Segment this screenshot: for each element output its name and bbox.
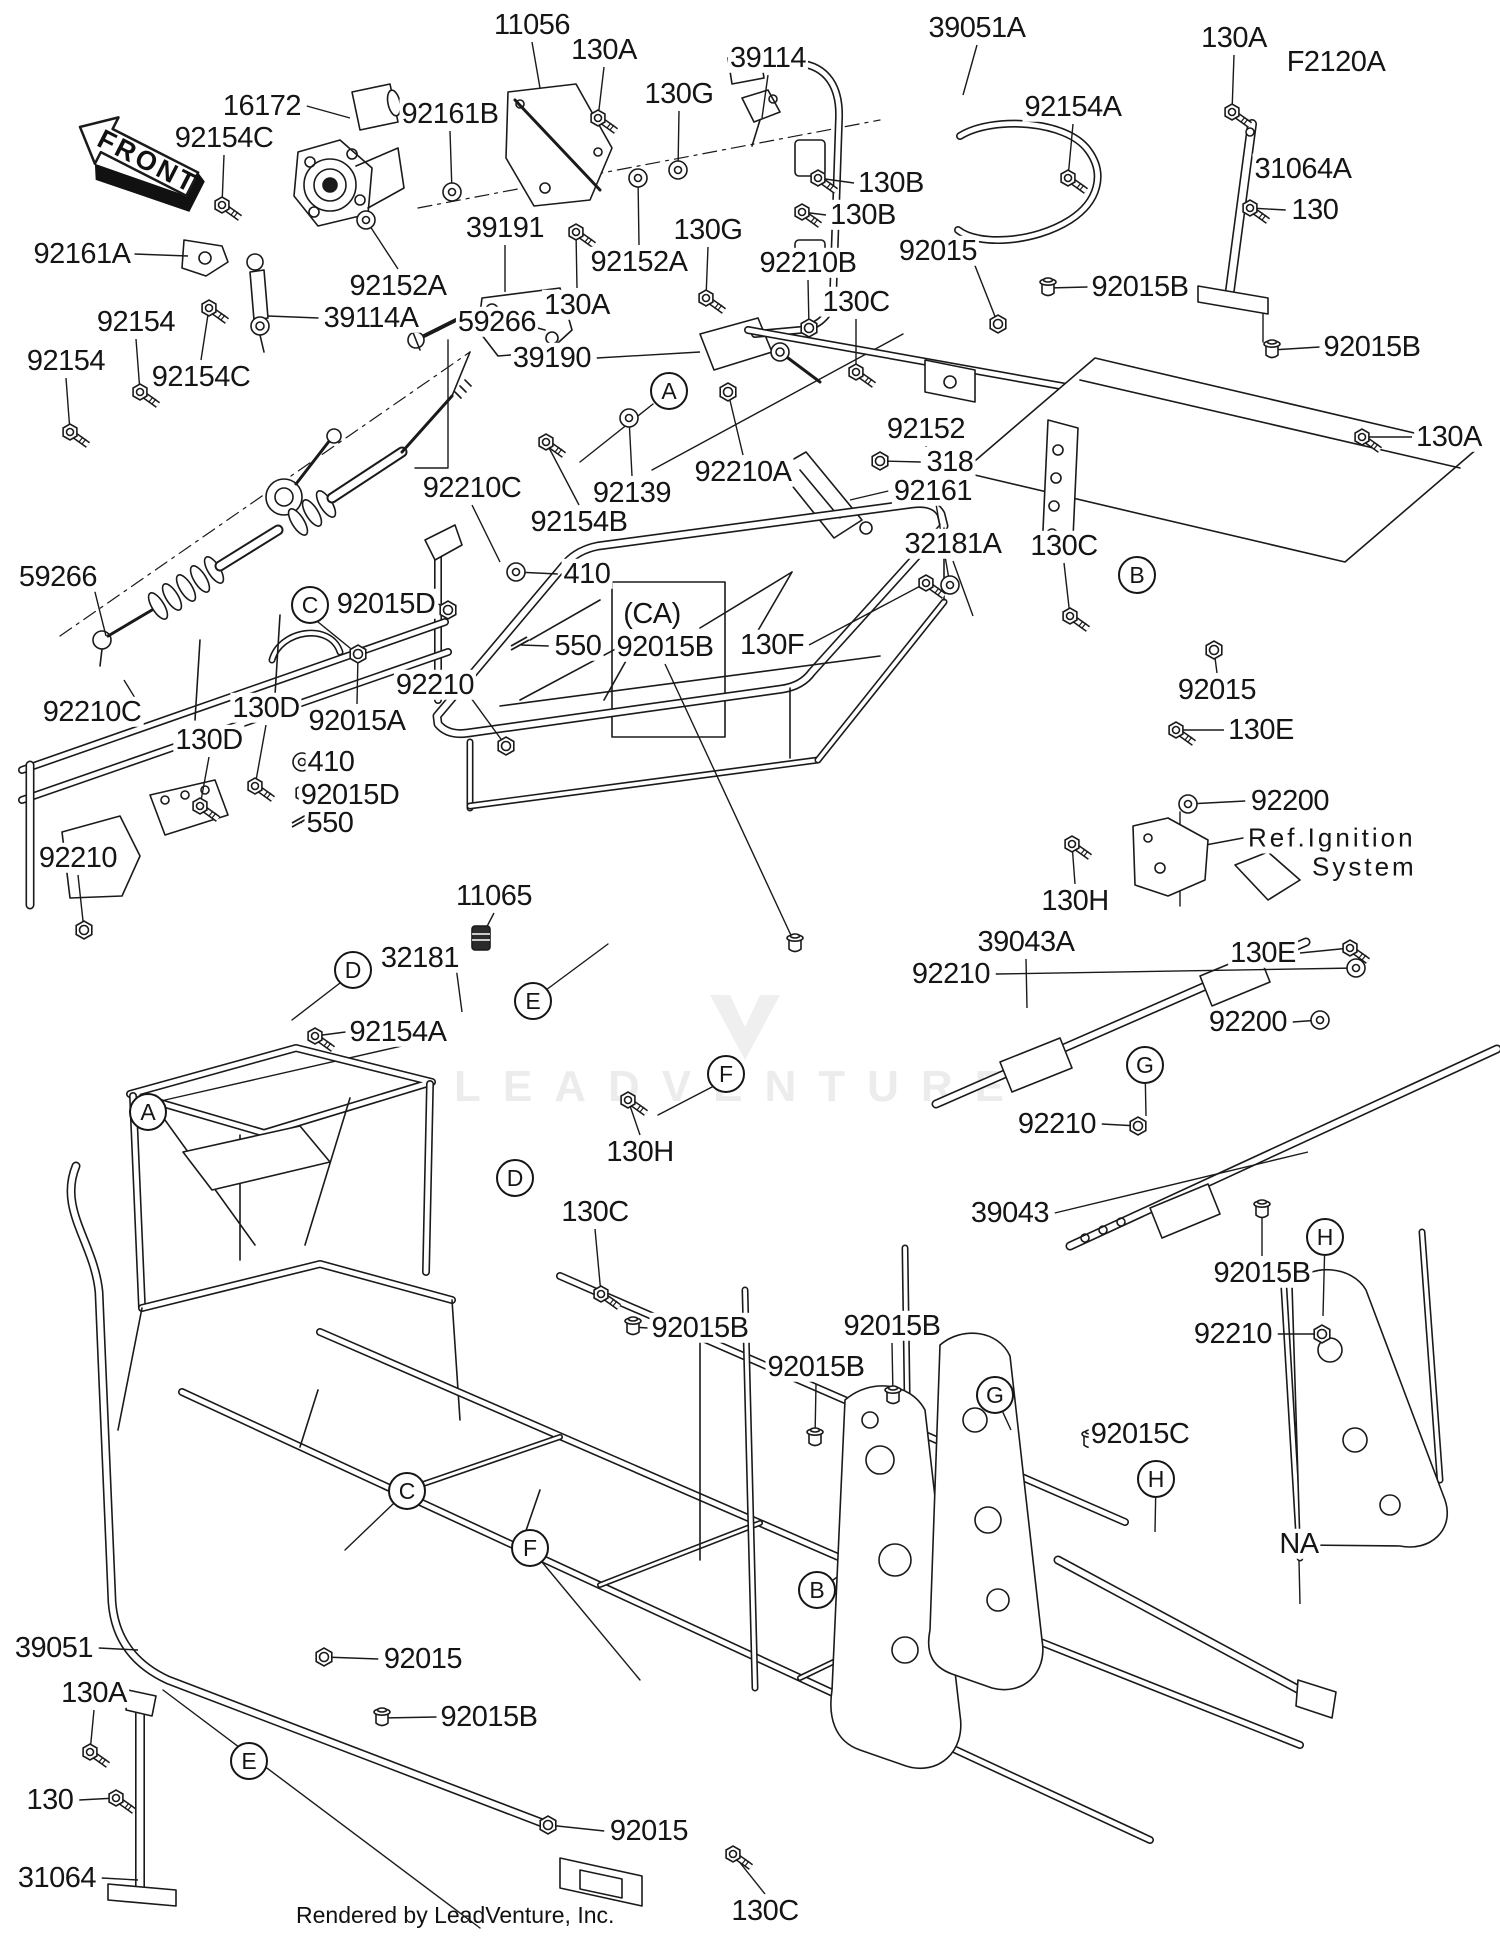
part-label: 92015D xyxy=(335,589,438,619)
part-label: 130E xyxy=(1228,938,1298,968)
part-label: 92161 xyxy=(892,476,974,506)
part-label: 39043 xyxy=(969,1198,1051,1228)
part-label: 130D xyxy=(230,693,301,723)
part-label: 130C xyxy=(559,1197,630,1227)
part-label: 130A xyxy=(1414,422,1484,452)
part-label: 39191 xyxy=(464,213,546,243)
part-label: 92210C xyxy=(421,473,524,503)
callout-circle-C: C xyxy=(388,1472,426,1510)
callout-circle-H: H xyxy=(1137,1460,1175,1498)
part-label: 410 xyxy=(562,559,613,589)
part-label: 32181A xyxy=(903,529,1004,559)
part-label: 11056 xyxy=(492,10,572,40)
callout-circle-C: C xyxy=(291,586,329,624)
part-label: 130A xyxy=(1199,23,1269,53)
part-label: 39051 xyxy=(13,1633,95,1663)
part-label: 130F xyxy=(738,630,806,660)
part-label: 39043A xyxy=(976,927,1077,957)
part-label: 92154A xyxy=(1023,92,1124,122)
part-label: 92154C xyxy=(150,362,253,392)
part-label: 130 xyxy=(25,1785,76,1815)
part-label: 550 xyxy=(305,808,356,838)
callout-circle-D: D xyxy=(496,1159,534,1197)
callout-circle-E: E xyxy=(230,1742,268,1780)
part-label: 92139 xyxy=(591,478,673,508)
part-label: (CA) xyxy=(621,599,683,629)
ref-note-line1: Ref.Ignition xyxy=(1248,823,1416,854)
callout-circle-F: F xyxy=(511,1529,549,1567)
part-label: 92210 xyxy=(910,959,992,989)
part-label: 130D xyxy=(173,725,244,755)
part-label: 92015B xyxy=(1212,1258,1313,1288)
part-label: 92210 xyxy=(1192,1319,1274,1349)
part-label: 92015 xyxy=(1176,675,1258,705)
part-label: 410 xyxy=(306,747,357,777)
part-label: 92015B xyxy=(615,632,716,662)
part-label: 130C xyxy=(1028,531,1099,561)
part-label: 92152 xyxy=(885,414,967,444)
part-label: 92210A xyxy=(693,457,794,487)
part-label: 92161B xyxy=(400,99,501,129)
part-label: 92015C xyxy=(1089,1419,1192,1449)
part-label: 130C xyxy=(820,287,891,317)
part-label: 92154 xyxy=(95,307,177,337)
part-label: 130E xyxy=(1226,715,1296,745)
part-label: 92154A xyxy=(348,1017,449,1047)
part-label: 92200 xyxy=(1207,1007,1289,1037)
part-label: 130B xyxy=(828,200,898,230)
part-label: 92154 xyxy=(25,346,107,376)
callout-circle-F: F xyxy=(707,1055,745,1093)
part-label: 92015 xyxy=(897,236,979,266)
part-label: 130A xyxy=(59,1678,129,1708)
part-label: 92154B xyxy=(529,507,630,537)
part-label: 130 xyxy=(1290,195,1341,225)
part-label: 550 xyxy=(553,631,604,661)
part-label: 16172 xyxy=(221,91,303,121)
callout-circle-H: H xyxy=(1306,1218,1344,1256)
part-label: 92210C xyxy=(41,697,144,727)
callout-circle-B: B xyxy=(798,1571,836,1609)
callout-circle-A: A xyxy=(650,372,688,410)
part-label: 92161A xyxy=(32,239,133,269)
ref-note-line2: System xyxy=(1312,852,1417,883)
footer-credit: Rendered by LeadVenture, Inc. xyxy=(296,1902,614,1929)
part-label: 39190 xyxy=(511,343,593,373)
part-label: 59266 xyxy=(456,307,538,337)
part-label: 92015B xyxy=(650,1313,751,1343)
part-label: 92015 xyxy=(608,1816,690,1846)
part-label: 130H xyxy=(604,1137,675,1167)
part-label: 92015B xyxy=(1090,272,1191,302)
part-label: 59266 xyxy=(17,562,99,592)
callout-circle-G: G xyxy=(976,1376,1014,1414)
part-label: NA xyxy=(1277,1529,1320,1559)
part-label: 92152A xyxy=(348,271,449,301)
part-label: 92015B xyxy=(1322,332,1423,362)
part-label: 39114A xyxy=(322,303,421,333)
part-label: 32181 xyxy=(379,943,461,973)
part-label: 92210 xyxy=(37,843,119,873)
part-label: 11065 xyxy=(454,881,534,911)
part-label: 318 xyxy=(925,447,976,477)
part-label: 130H xyxy=(1039,886,1110,916)
part-label: 92200 xyxy=(1249,786,1331,816)
labels-layer: Ref.Ignition System 1617292154C92161B110… xyxy=(0,0,1500,1938)
part-label: 92152A xyxy=(589,247,690,277)
part-label: 92210 xyxy=(394,670,476,700)
callout-circle-G: G xyxy=(1126,1046,1164,1084)
part-label: 92015A xyxy=(307,706,408,736)
part-label: 92015D xyxy=(299,780,402,810)
callout-circle-D: D xyxy=(334,951,372,989)
part-label: 92210B xyxy=(758,248,859,278)
part-label: 39051A xyxy=(927,13,1028,43)
part-label: 92015B xyxy=(439,1702,540,1732)
part-label: 130B xyxy=(856,168,926,198)
part-label: 130G xyxy=(643,79,716,109)
part-label: 31064A xyxy=(1253,154,1354,184)
part-label: 92015B xyxy=(842,1311,943,1341)
callout-circle-B: B xyxy=(1118,556,1156,594)
part-label: 92015 xyxy=(382,1644,464,1674)
callout-circle-A: A xyxy=(129,1093,167,1131)
part-label: 130A xyxy=(542,290,612,320)
part-label: 92015B xyxy=(766,1352,867,1382)
part-label: 130A xyxy=(569,35,639,65)
parts-diagram-page: LEADVENTURE xyxy=(0,0,1500,1938)
part-label: 31064 xyxy=(16,1863,98,1893)
part-label: 92210 xyxy=(1016,1109,1098,1139)
part-label: 130G xyxy=(672,215,745,245)
part-label: 39114 xyxy=(728,43,808,73)
part-label: F2120A xyxy=(1285,47,1388,77)
part-label: 92154C xyxy=(173,123,276,153)
callout-circle-E: E xyxy=(514,982,552,1020)
part-label: 130C xyxy=(729,1896,800,1926)
